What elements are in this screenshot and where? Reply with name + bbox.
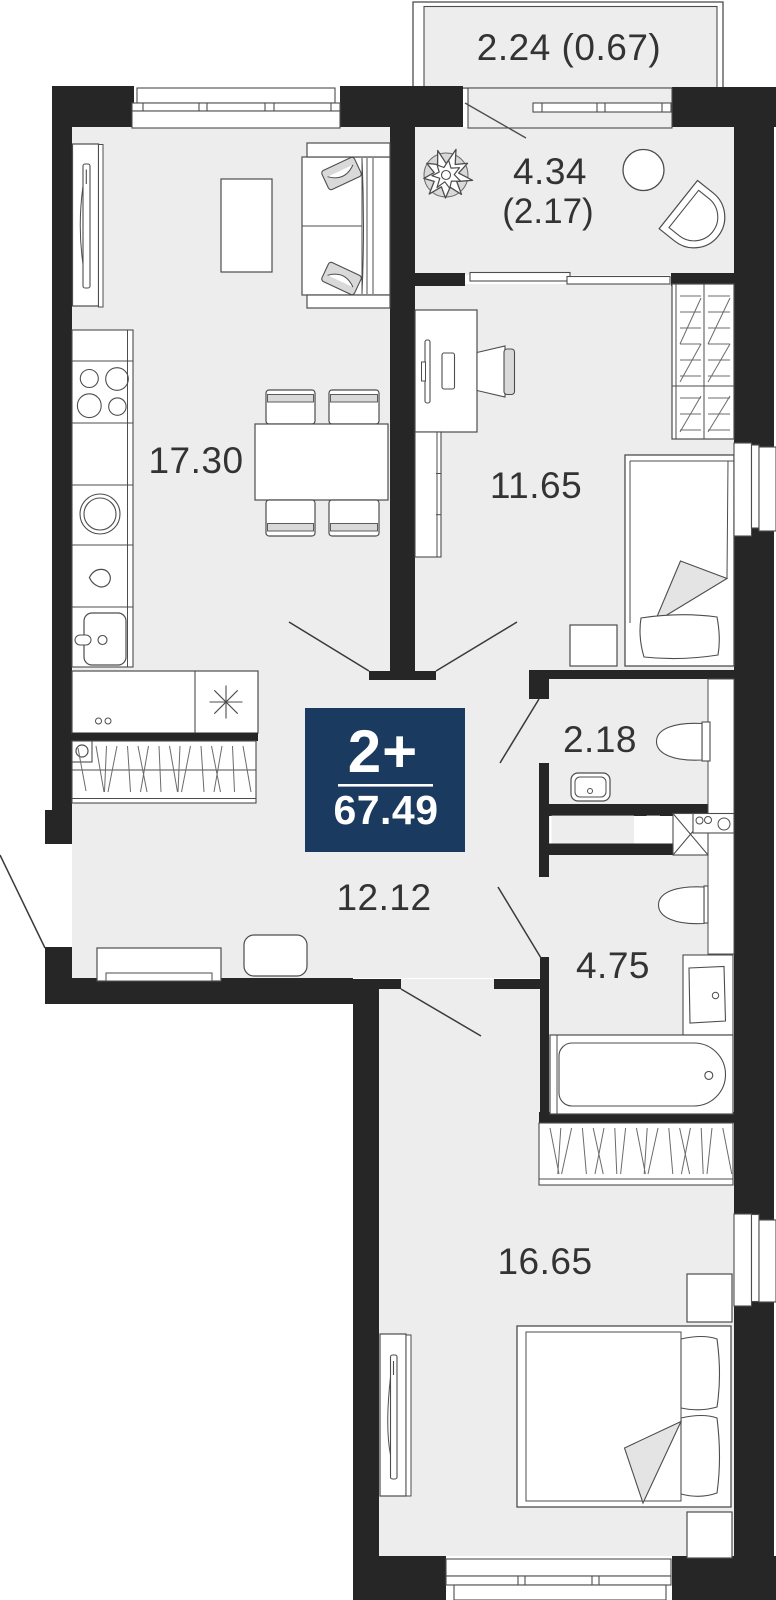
svg-text:4.34: 4.34	[513, 151, 587, 192]
svg-text:12.12: 12.12	[336, 877, 431, 918]
svg-text:11.65: 11.65	[490, 465, 582, 506]
svg-text:(2.17): (2.17)	[502, 192, 593, 231]
svg-text:17.30: 17.30	[148, 440, 243, 481]
svg-text:2.24 (0.67): 2.24 (0.67)	[477, 27, 661, 68]
svg-text:4.75: 4.75	[576, 945, 650, 986]
svg-text:2.18: 2.18	[563, 719, 637, 760]
svg-text:67.49: 67.49	[333, 787, 438, 833]
svg-text:16.65: 16.65	[497, 1241, 592, 1282]
svg-text:2+: 2+	[348, 718, 418, 785]
